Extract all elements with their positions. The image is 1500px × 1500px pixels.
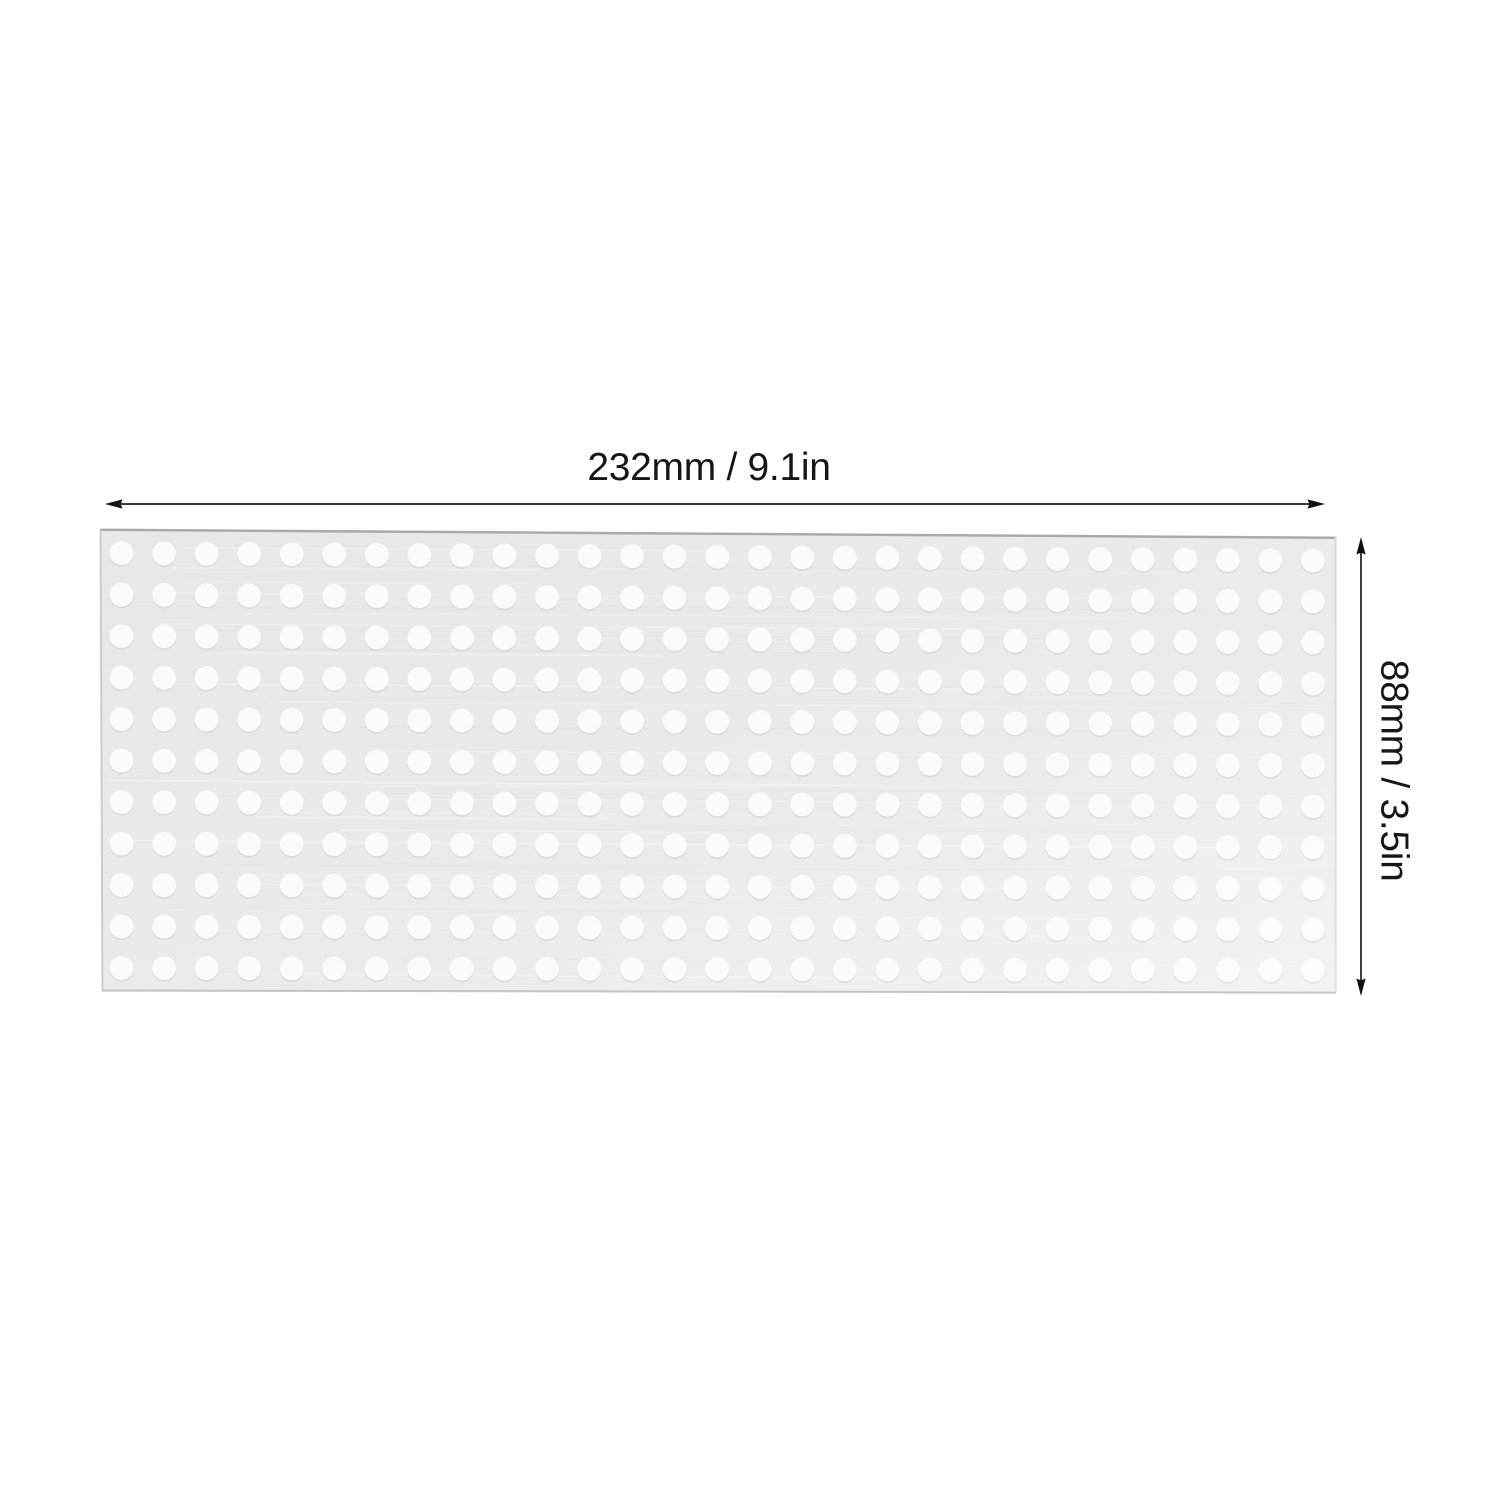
svg-text:232mm / 9.1in: 232mm / 9.1in (587, 446, 830, 489)
svg-text:88mm / 3.5in: 88mm / 3.5in (1373, 660, 1416, 882)
